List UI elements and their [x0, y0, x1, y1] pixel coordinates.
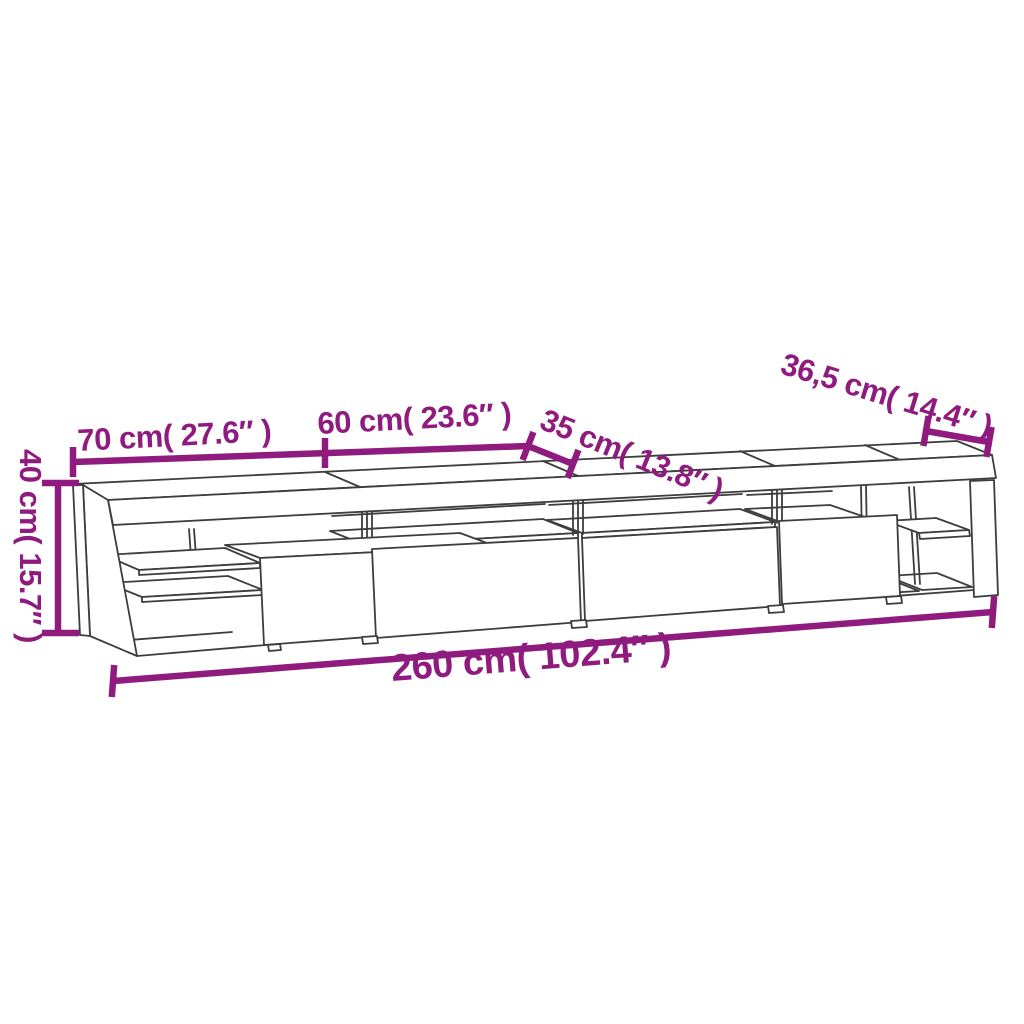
- product-dimension-diagram: 70 cm( 27.6″ ) 60 cm( 23.6″ ) 35 cm( 13.…: [0, 0, 1024, 1024]
- dim-section2-width-label: 60 cm( 23.6″ ): [317, 396, 513, 441]
- dim-section1-width-label: 70 cm( 27.6″ ): [77, 413, 273, 458]
- dim-total-width-label: 260 cm( 102.4″ ): [389, 626, 672, 690]
- dim-height-label: 40 cm( 15.7″ ): [13, 449, 48, 643]
- top-panel: [73, 441, 996, 525]
- right-side-panel: [970, 480, 998, 597]
- tv-stand-dimension-drawing: 70 cm( 27.6″ ) 60 cm( 23.6″ ) 35 cm( 13.…: [0, 0, 1024, 1024]
- dim-right-compartment-label: 36,5 cm( 14.4″ ): [777, 346, 996, 443]
